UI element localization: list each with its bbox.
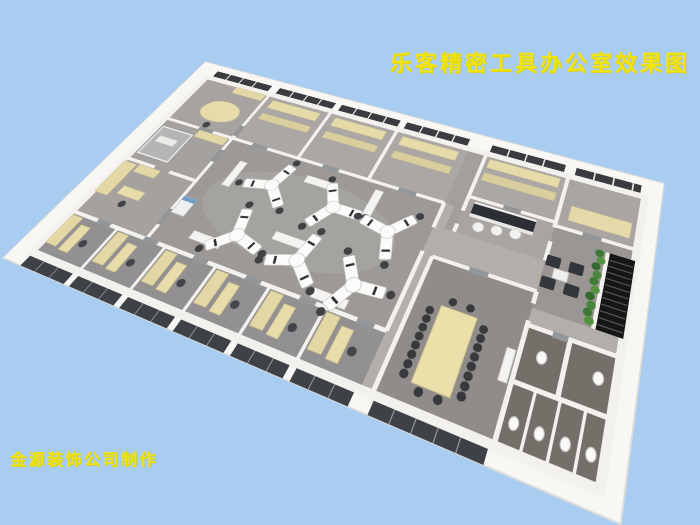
page-title: 乐客精密工具办公室效果图 <box>390 46 690 78</box>
render-canvas: 乐客精密工具办公室效果图 金源装饰公司制作 <box>0 0 700 525</box>
floorplan-3d-container <box>32 77 645 490</box>
credit-text: 金源装饰公司制作 <box>10 446 158 470</box>
